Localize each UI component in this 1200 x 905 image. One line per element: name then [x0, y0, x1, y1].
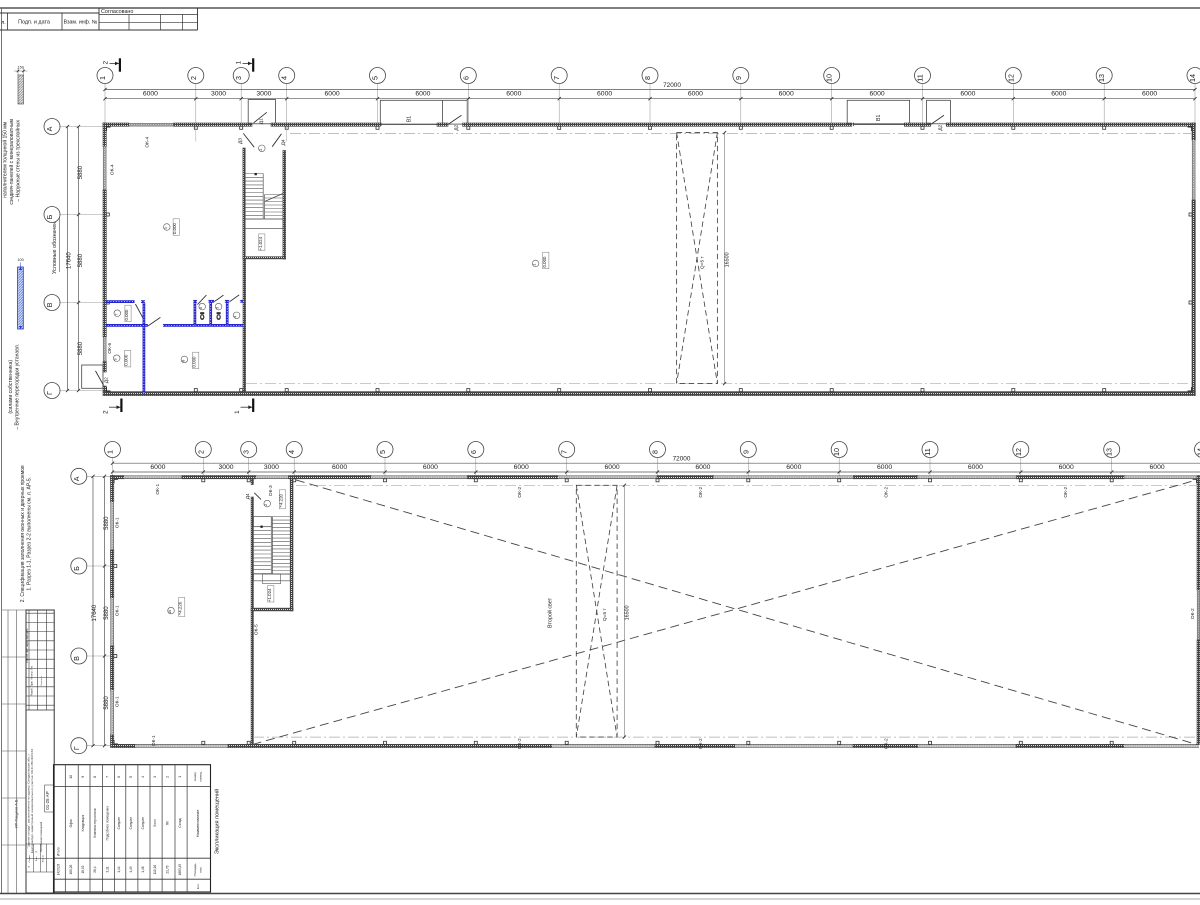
- svg-text:Д4: Д4: [280, 139, 286, 145]
- svg-text:Комната персонала: Комната персонала: [93, 808, 97, 837]
- svg-text:ОК-2: ОК-2: [1063, 486, 1069, 497]
- svg-text:160,26: 160,26: [69, 864, 73, 874]
- svg-text:1423,03: 1423,03: [56, 864, 60, 876]
- svg-text:6000: 6000: [415, 91, 430, 98]
- svg-text:1: 1: [236, 60, 243, 64]
- svg-text:3: 3: [164, 227, 168, 229]
- svg-text:ОК-2: ОК-2: [698, 738, 704, 749]
- svg-text:6000: 6000: [779, 91, 794, 98]
- svg-text:Условные обозначения: Условные обозначения: [52, 216, 58, 274]
- svg-text:6000: 6000: [786, 464, 801, 471]
- svg-text:12: 12: [1006, 74, 1015, 82]
- svg-text:6000: 6000: [143, 91, 158, 98]
- svg-text:3: 3: [242, 450, 251, 454]
- svg-text:В1: В1: [876, 115, 882, 121]
- svg-text:Экспликация помещений: Экспликация помещений: [214, 789, 221, 854]
- svg-text:Качалков: Качалков: [41, 675, 43, 685]
- svg-text:помещ.: помещ.: [199, 771, 203, 781]
- svg-text:В: В: [72, 656, 81, 661]
- svg-text:Офис: Офис: [69, 818, 73, 827]
- svg-text:5880: 5880: [104, 516, 110, 530]
- svg-text:л.: л.: [1, 20, 5, 26]
- svg-text:Холл: Холл: [153, 819, 157, 827]
- svg-text:ОК-5: ОК-5: [254, 624, 260, 635]
- svg-text:13: 13: [1105, 448, 1114, 456]
- svg-text:ОК-2: ОК-2: [517, 486, 523, 497]
- svg-text:9: 9: [114, 359, 118, 361]
- svg-text:ОК-2: ОК-2: [698, 486, 704, 497]
- svg-text:ОК-2: ОК-2: [517, 738, 523, 749]
- svg-text:10: 10: [832, 448, 841, 456]
- svg-text:5: 5: [129, 776, 133, 778]
- svg-text:6000: 6000: [877, 464, 892, 471]
- svg-text:В: В: [45, 302, 54, 307]
- svg-text:3000: 3000: [218, 464, 233, 471]
- svg-text:ОК-1: ОК-1: [155, 483, 161, 494]
- svg-text:Экспликация помещений: Экспликация помещений: [39, 821, 43, 852]
- svg-text:10: 10: [69, 775, 73, 779]
- svg-text:Согласовано: Согласовано: [101, 9, 133, 15]
- svg-text:16500: 16500: [724, 252, 730, 267]
- svg-text:1,44: 1,44: [117, 866, 121, 872]
- svg-text:6: 6: [461, 76, 470, 80]
- svg-text:10: 10: [168, 610, 172, 614]
- svg-text:6000: 6000: [605, 464, 620, 471]
- svg-text:6000: 6000: [423, 464, 438, 471]
- svg-text:Б: Б: [45, 214, 54, 219]
- svg-text:1: 1: [234, 410, 241, 414]
- svg-text:+4.220: +4.220: [278, 493, 283, 507]
- svg-text:сэндвич-панелей с минераловатн: сэндвич-панелей с минераловатным: [8, 118, 15, 204]
- svg-text:6000: 6000: [695, 464, 710, 471]
- svg-text:Д2: Д2: [454, 124, 460, 130]
- svg-text:17640: 17640: [67, 252, 73, 269]
- svg-text:наполнителем толщиной 150 мм: наполнителем толщиной 150 мм: [2, 121, 9, 197]
- svg-text:150: 150: [18, 66, 24, 70]
- svg-text:ОК-1: ОК-1: [115, 517, 121, 528]
- svg-text:28,4: 28,4: [93, 866, 97, 872]
- svg-text:Площадь: Площадь: [193, 863, 197, 876]
- svg-text:6: 6: [199, 307, 203, 309]
- svg-text:6000: 6000: [688, 91, 703, 98]
- svg-text:Номер: Номер: [193, 772, 197, 782]
- svg-text:4: 4: [287, 450, 296, 454]
- svg-text:18,92: 18,92: [81, 865, 85, 873]
- svg-text:7: 7: [106, 776, 110, 778]
- svg-text:Г: Г: [45, 391, 54, 395]
- svg-text:Д4: Д4: [245, 493, 251, 499]
- svg-text:3000: 3000: [256, 91, 271, 98]
- svg-text:11: 11: [916, 74, 925, 81]
- svg-text:ОК-1: ОК-1: [151, 735, 157, 746]
- svg-text:2: 2: [259, 149, 263, 151]
- svg-text:Санузел: Санузел: [141, 817, 145, 830]
- svg-text:(силами собственника): (силами собственника): [8, 360, 14, 414]
- svg-text:3000: 3000: [211, 91, 226, 98]
- svg-text:6: 6: [117, 776, 121, 778]
- svg-text:3: 3: [153, 776, 157, 778]
- svg-text:9: 9: [741, 450, 750, 454]
- svg-text:5: 5: [216, 307, 220, 309]
- svg-text:2: 2: [103, 60, 110, 64]
- svg-text:14: 14: [1196, 448, 1200, 456]
- svg-text:72000: 72000: [663, 82, 681, 89]
- svg-text:Кол.: Кол.: [196, 884, 200, 890]
- svg-text:13: 13: [1097, 74, 1106, 82]
- svg-text:01-25 АР: 01-25 АР: [45, 791, 50, 809]
- svg-text:Д2: Д2: [938, 124, 944, 130]
- svg-text:3,11: 3,11: [106, 866, 110, 872]
- svg-text:Листов: Листов: [43, 854, 45, 862]
- svg-text:72000: 72000: [673, 456, 691, 463]
- svg-text:+1.024: +1.024: [267, 588, 272, 602]
- svg-text:110,16: 110,16: [153, 865, 157, 875]
- svg-text:6000: 6000: [1150, 464, 1165, 471]
- svg-text:6000: 6000: [960, 91, 975, 98]
- svg-text:Изм Кол Лист №док Подп Дата: Изм Кол Лист №док Подп Дата: [26, 628, 29, 663]
- svg-text:6000: 6000: [968, 464, 983, 471]
- svg-text:14: 14: [1188, 74, 1197, 82]
- svg-text:– Внутренние перегородки устан: – Внутренние перегородки устанавл.: [15, 344, 21, 430]
- svg-text:Б: Б: [72, 566, 81, 571]
- svg-text:7: 7: [114, 314, 118, 316]
- svg-text:2: 2: [196, 450, 205, 454]
- svg-text:Наименование: Наименование: [195, 809, 200, 838]
- svg-text:5880: 5880: [104, 606, 110, 620]
- svg-text:Разраб. Пров. Н.контр.: Разраб. Пров. Н.контр. Утв.: [31, 665, 34, 696]
- svg-text:Екатеринбург, кадастровый номе: Екатеринбург, кадастровый номерземельног…: [30, 749, 34, 854]
- svg-text:2. Спецификация заполнения око: 2. Спецификация заполнения оконных и две…: [20, 465, 26, 602]
- svg-text:5: 5: [371, 76, 380, 80]
- svg-text:3000: 3000: [264, 464, 279, 471]
- svg-text:0.000: 0.000: [124, 354, 129, 366]
- svg-text:17640: 17640: [92, 604, 98, 621]
- svg-text:0.000: 0.000: [192, 356, 197, 368]
- svg-text:9: 9: [734, 76, 743, 80]
- svg-text:1: 1: [533, 264, 537, 266]
- svg-text:1: 1: [98, 76, 107, 80]
- svg-text:4: 4: [234, 316, 238, 318]
- svg-text:ОК-1: ОК-1: [115, 696, 121, 707]
- svg-text:11: 11: [923, 448, 932, 455]
- svg-text:10: 10: [825, 74, 834, 82]
- svg-text:Склад: Склад: [178, 818, 182, 827]
- svg-text:3: 3: [234, 76, 243, 80]
- svg-text:2: 2: [166, 776, 170, 778]
- svg-text:Итого: Итого: [56, 847, 60, 856]
- svg-text:5880: 5880: [78, 165, 84, 179]
- svg-text:6000: 6000: [597, 91, 612, 98]
- svg-text:П: П: [28, 866, 31, 868]
- svg-text:ОК-3: ОК-3: [268, 485, 274, 496]
- svg-text:6000: 6000: [506, 91, 521, 98]
- svg-text:6000: 6000: [514, 464, 529, 471]
- svg-text:4: 4: [141, 776, 145, 778]
- svg-text:1,49: 1,49: [129, 866, 133, 872]
- svg-text:ОК-6: ОК-6: [107, 342, 113, 353]
- svg-text:пом.: пом.: [199, 867, 203, 873]
- svg-text:+4.220: +4.220: [178, 601, 183, 615]
- svg-text:2: 2: [103, 410, 110, 414]
- svg-text:4: 4: [280, 76, 289, 80]
- svg-text:8: 8: [651, 450, 660, 454]
- svg-text:6000: 6000: [325, 91, 340, 98]
- svg-text:12: 12: [1014, 448, 1023, 456]
- svg-text:ОК-4: ОК-4: [110, 164, 116, 175]
- svg-text:21,76: 21,76: [166, 865, 170, 873]
- svg-text:А: А: [72, 476, 81, 481]
- svg-text:8: 8: [93, 776, 97, 778]
- svg-text:9: 9: [81, 776, 85, 778]
- svg-text:6000: 6000: [1059, 464, 1074, 471]
- svg-text:Взам. инф. №: Взам. инф. №: [64, 20, 98, 26]
- svg-text:В1: В1: [406, 116, 412, 122]
- svg-text:0.000: 0.000: [124, 309, 129, 321]
- svg-text:Д2: Д2: [103, 377, 109, 383]
- svg-text:100: 100: [17, 258, 23, 262]
- svg-text:5880: 5880: [104, 696, 110, 710]
- svg-text:Q=5 т: Q=5 т: [602, 608, 608, 622]
- svg-text:0.000: 0.000: [542, 256, 547, 268]
- svg-text:5: 5: [378, 450, 387, 454]
- svg-text:6000: 6000: [1142, 91, 1157, 98]
- svg-text:7: 7: [560, 450, 569, 454]
- svg-text:8: 8: [643, 76, 652, 80]
- svg-text:5880: 5880: [78, 253, 84, 267]
- svg-text:ОК-2: ОК-2: [884, 486, 890, 497]
- svg-text:– Наружные стены из трехслойны: – Наружные стены из трехслойных: [15, 120, 22, 202]
- svg-text:7: 7: [552, 76, 561, 80]
- svg-text:1: 1: [178, 776, 182, 778]
- svg-text:5880: 5880: [78, 341, 84, 355]
- svg-text:Г: Г: [72, 746, 81, 750]
- svg-text:2: 2: [264, 504, 268, 506]
- svg-text:А: А: [45, 126, 54, 131]
- svg-text:ЛК: ЛК: [166, 821, 170, 825]
- svg-text:6000: 6000: [150, 464, 165, 471]
- svg-text:Д1: Д1: [259, 118, 265, 124]
- svg-text:ОК-1: ОК-1: [115, 605, 121, 616]
- svg-text:1,46: 1,46: [141, 866, 145, 872]
- svg-text:2: 2: [189, 76, 198, 80]
- svg-text:Q=5 т: Q=5 т: [700, 256, 706, 270]
- svg-text:6000: 6000: [870, 91, 885, 98]
- svg-text:+1.024: +1.024: [258, 236, 263, 250]
- svg-text:ОК-4: ОК-4: [145, 136, 151, 147]
- svg-text:Лист: Лист: [36, 856, 38, 861]
- svg-text:16500: 16500: [625, 605, 631, 620]
- svg-text:Подп. и дата: Подп. и дата: [18, 20, 50, 26]
- svg-text:Второй свет: Второй свет: [547, 597, 554, 628]
- svg-text:Санузел: Санузел: [129, 817, 133, 830]
- svg-text:1: 1: [106, 450, 115, 454]
- svg-text:0.000: 0.000: [172, 222, 177, 234]
- svg-text:ОК-2: ОК-2: [884, 738, 890, 749]
- svg-text:Санузел: Санузел: [117, 817, 121, 830]
- svg-text:Кладовщик: Кладовщик: [81, 814, 85, 831]
- svg-text:1. Разрез 1-1, Разрез 2-2 выпо: 1. Разрез 1-1, Разрез 2-2 выполнены см. …: [26, 477, 32, 591]
- svg-text:Д3: Д3: [237, 138, 243, 144]
- svg-text:ОК-2: ОК-2: [1190, 608, 1196, 619]
- svg-text:6000: 6000: [332, 464, 347, 471]
- svg-text:1883,45: 1883,45: [178, 864, 182, 876]
- svg-text:6000: 6000: [1051, 91, 1066, 98]
- svg-text:6: 6: [469, 450, 478, 454]
- svg-text:Подсобное помещение: Подсобное помещение: [106, 806, 110, 841]
- svg-text:Стадия: Стадия: [29, 854, 31, 862]
- svg-text:8: 8: [181, 360, 185, 362]
